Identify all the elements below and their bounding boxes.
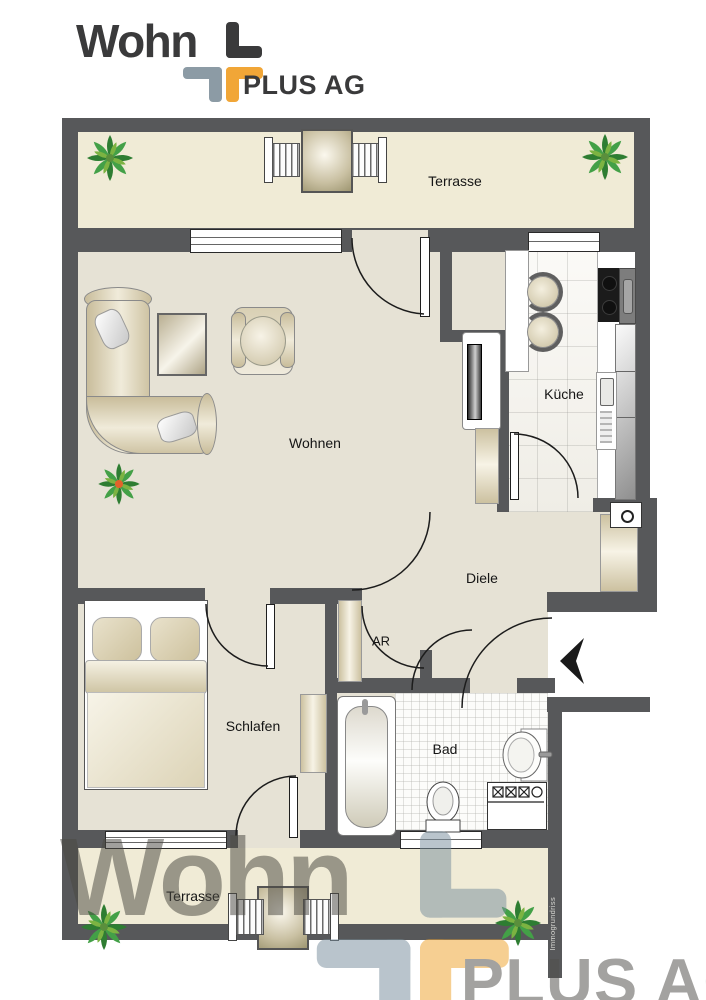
room-label-living: Wohnen [289, 435, 341, 451]
plant-icon [582, 134, 628, 180]
room-label-hall: Diele [466, 570, 498, 586]
door-arc [352, 238, 424, 314]
room-label-storage: AR [372, 634, 390, 649]
room-label-terrace-top: Terrasse [428, 173, 482, 189]
door-arc [206, 604, 268, 666]
watermark-text-plus-ag: PLUS AG [461, 946, 706, 1000]
plant-icon [87, 135, 133, 181]
washing-machine-symbols [488, 787, 544, 802]
room-label-kitchen: Küche [544, 386, 584, 402]
floorplan-canvas: Wohn PLUS AG [0, 0, 706, 1000]
room-label-bath: Bad [433, 741, 458, 757]
room-label-bedroom: Schlafen [226, 718, 280, 734]
watermark-text-wohn: Wohn [60, 812, 350, 942]
door-arc [514, 434, 578, 498]
door-arc [462, 618, 552, 708]
washbasin-icon [503, 729, 552, 781]
entrance-arrow-icon [560, 638, 584, 684]
door-arc [412, 630, 472, 690]
plant-icon [98, 463, 139, 504]
watermark-logo: Wohn PLUS AG [60, 812, 706, 1000]
door-arc [352, 512, 430, 590]
